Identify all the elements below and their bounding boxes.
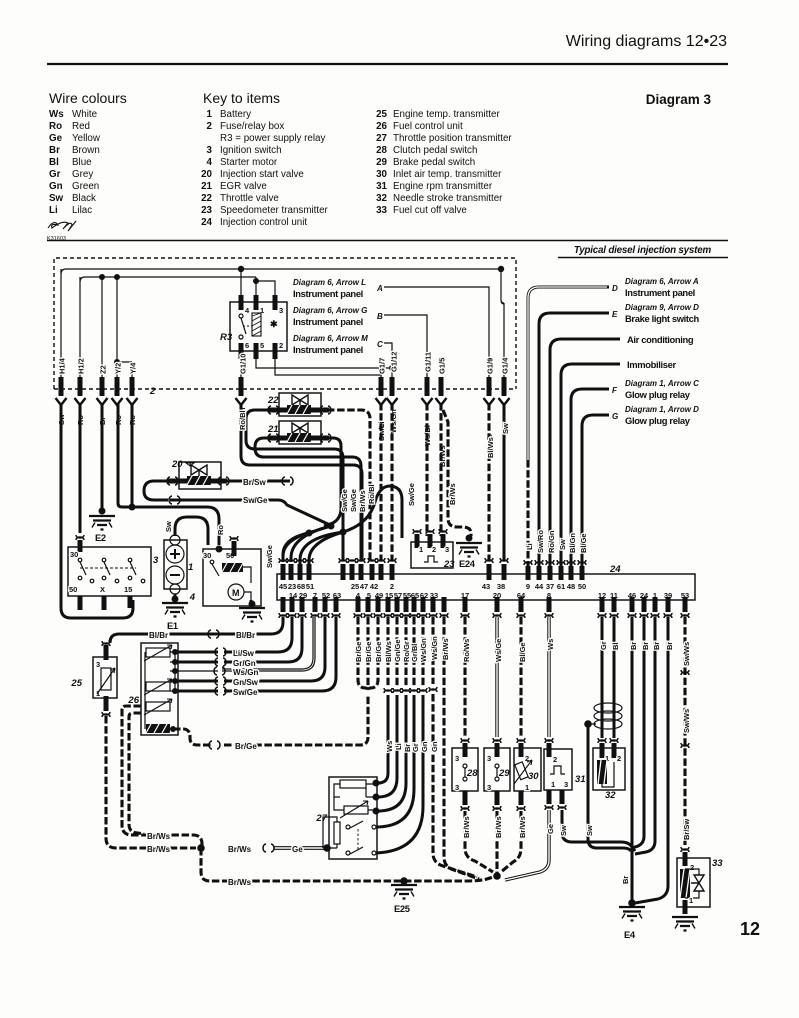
svg-text:Ro: Ro — [216, 525, 225, 535]
svg-text:29: 29 — [376, 157, 387, 168]
svg-text:Ws: Ws — [49, 109, 64, 120]
svg-text:Br: Br — [629, 642, 638, 650]
svg-text:E: E — [612, 310, 618, 319]
svg-text:2: 2 — [432, 545, 436, 554]
svg-text:28: 28 — [376, 145, 387, 156]
svg-text:23: 23 — [443, 559, 455, 570]
svg-text:Y/4: Y/4 — [129, 362, 138, 374]
svg-text:30: 30 — [203, 551, 211, 560]
svg-text:Brake pedal switch: Brake pedal switch — [393, 157, 475, 168]
svg-text:Fuel cut off valve: Fuel cut off valve — [393, 205, 467, 216]
svg-text:Br/Ws: Br/Ws — [228, 845, 252, 854]
svg-text:Diagram 3: Diagram 3 — [646, 92, 712, 107]
svg-text:Blue: Blue — [72, 157, 92, 168]
svg-text:Br/Ws: Br/Ws — [358, 490, 367, 512]
svg-text:25: 25 — [351, 582, 359, 591]
svg-text:Lilac: Lilac — [72, 205, 92, 216]
svg-text:9: 9 — [526, 582, 530, 591]
svg-text:Inlet air temp. transmitter: Inlet air temp. transmitter — [393, 169, 502, 180]
svg-text:Ws/Gn: Ws/Gn — [233, 668, 258, 677]
svg-text:Immobiliser: Immobiliser — [627, 359, 676, 370]
svg-text:Br/Ge: Br/Ge — [374, 642, 383, 662]
svg-text:G1/10: G1/10 — [239, 354, 248, 374]
svg-text:Ro: Ro — [49, 121, 62, 132]
svg-text:27: 27 — [376, 133, 387, 144]
svg-text:2: 2 — [553, 755, 557, 764]
svg-text:33: 33 — [712, 858, 723, 869]
svg-text:Diagram 6, Arrow L: Diagram 6, Arrow L — [293, 278, 366, 287]
svg-text:M: M — [232, 588, 240, 598]
svg-text:Br/Ws: Br/Ws — [441, 638, 450, 660]
svg-text:Ro/Bl: Ro/Bl — [367, 484, 376, 504]
svg-text:1: 1 — [525, 783, 529, 792]
svg-text:Y/2: Y/2 — [114, 363, 123, 374]
svg-text:Bl: Bl — [611, 643, 620, 651]
svg-text:Br/Ws: Br/Ws — [448, 483, 457, 505]
svg-text:G: G — [612, 412, 618, 421]
svg-text:Black: Black — [72, 193, 96, 204]
svg-text:Injection start valve: Injection start valve — [220, 169, 304, 180]
svg-text:Gn: Gn — [430, 741, 439, 752]
svg-text:6: 6 — [245, 341, 249, 350]
svg-text:4: 4 — [207, 157, 213, 168]
svg-text:Sw/Ws: Sw/Ws — [682, 642, 691, 666]
svg-text:50: 50 — [578, 582, 586, 591]
svg-text:31: 31 — [575, 774, 586, 785]
svg-text:Grey: Grey — [72, 169, 93, 180]
svg-text:4: 4 — [189, 592, 196, 603]
svg-text:Clutch pedal switch: Clutch pedal switch — [393, 145, 477, 156]
svg-text:White: White — [72, 109, 98, 120]
svg-text:3: 3 — [207, 145, 213, 156]
svg-text:Throttle position transmitter: Throttle position transmitter — [393, 133, 512, 144]
svg-text:E24: E24 — [459, 558, 476, 569]
svg-text:G1/12: G1/12 — [390, 352, 399, 372]
svg-text:38: 38 — [497, 582, 505, 591]
svg-text:Instrument panel: Instrument panel — [625, 287, 695, 298]
svg-text:42: 42 — [370, 582, 378, 591]
svg-text:Ro/Bl: Ro/Bl — [238, 410, 247, 430]
svg-text:Br/Ge: Br/Ge — [364, 642, 373, 662]
svg-text:20: 20 — [201, 169, 212, 180]
svg-text:Sw: Sw — [558, 539, 567, 550]
svg-text:Needle stroke transmitter: Needle stroke transmitter — [393, 193, 503, 204]
svg-text:3: 3 — [279, 306, 283, 315]
svg-text:23: 23 — [288, 582, 296, 591]
svg-text:Bl: Bl — [49, 157, 59, 168]
svg-text:Bl/Gn: Bl/Gn — [568, 533, 577, 553]
svg-text:Red: Red — [72, 121, 90, 132]
svg-text:Gr: Gr — [599, 641, 608, 650]
svg-text:Br/Ws: Br/Ws — [518, 816, 527, 838]
svg-text:Fuel control unit: Fuel control unit — [393, 121, 463, 132]
svg-text:✱: ✱ — [270, 319, 278, 329]
svg-text:Li: Li — [49, 205, 58, 216]
svg-text:Sw/Ro: Sw/Ro — [536, 530, 545, 553]
svg-text:Bl/Ws: Bl/Ws — [384, 641, 393, 662]
svg-text:27: 27 — [315, 813, 327, 824]
svg-text:1: 1 — [551, 780, 555, 789]
svg-text:Bl/Ge: Bl/Ge — [579, 533, 588, 553]
svg-text:Br/Ge: Br/Ge — [235, 742, 257, 751]
svg-text:Ws/Gn: Ws/Gn — [430, 636, 439, 660]
svg-text:Gn/Ge: Gn/Ge — [393, 639, 402, 662]
svg-text:24: 24 — [609, 564, 621, 575]
svg-text:Sw: Sw — [164, 521, 173, 532]
svg-text:3: 3 — [96, 660, 100, 669]
svg-text:24: 24 — [201, 217, 212, 228]
svg-text:30: 30 — [528, 771, 539, 782]
svg-text:21: 21 — [267, 424, 279, 435]
svg-text:44: 44 — [535, 582, 544, 591]
svg-text:61: 61 — [557, 582, 565, 591]
svg-text:Gr/Bl: Gr/Bl — [410, 644, 419, 662]
svg-text:Green: Green — [72, 181, 99, 192]
svg-text:Air conditioning: Air conditioning — [627, 334, 694, 345]
svg-text:Sw: Sw — [49, 193, 64, 204]
svg-text:47: 47 — [360, 582, 368, 591]
svg-text:29: 29 — [498, 768, 510, 779]
svg-text:15: 15 — [124, 585, 132, 594]
svg-text:5: 5 — [260, 341, 264, 350]
svg-text:Fuse/relay box: Fuse/relay box — [220, 121, 284, 132]
svg-text:31: 31 — [376, 181, 387, 192]
svg-text:3: 3 — [564, 780, 568, 789]
svg-text:G1/4: G1/4 — [501, 357, 510, 374]
svg-text:Speedometer transmitter: Speedometer transmitter — [220, 205, 329, 216]
svg-text:12: 12 — [740, 919, 760, 939]
svg-text:25: 25 — [376, 109, 387, 120]
svg-text:Li: Li — [525, 543, 534, 550]
svg-text:3: 3 — [153, 555, 159, 566]
svg-text:Starter motor: Starter motor — [220, 157, 278, 168]
svg-text:Br/Ws: Br/Ws — [462, 816, 471, 838]
svg-text:51: 51 — [306, 582, 314, 591]
svg-text:Instrument panel: Instrument panel — [293, 316, 363, 327]
svg-text:Sw: Sw — [585, 825, 594, 836]
svg-text:Bl/Ws: Bl/Ws — [486, 437, 495, 458]
svg-text:Sw/Ge: Sw/Ge — [265, 545, 274, 568]
svg-text:Instrument panel: Instrument panel — [293, 344, 363, 355]
svg-text:Sw/Ws: Sw/Ws — [682, 709, 691, 733]
svg-text:Gr/Gn: Gr/Gn — [233, 659, 256, 668]
svg-text:Instrument panel: Instrument panel — [293, 288, 363, 299]
svg-text:Br/Ws: Br/Ws — [147, 832, 171, 841]
svg-text:1: 1 — [188, 562, 193, 573]
svg-text:E1: E1 — [167, 620, 178, 631]
svg-text:Brake light switch: Brake light switch — [625, 313, 700, 324]
svg-text:Ignition switch: Ignition switch — [220, 145, 282, 156]
svg-text:Sw: Sw — [559, 825, 568, 836]
svg-text:22: 22 — [267, 395, 279, 406]
svg-text:Ge: Ge — [546, 824, 555, 834]
svg-text:B: B — [377, 312, 383, 321]
svg-text:Engine temp. transmitter: Engine temp. transmitter — [393, 109, 500, 120]
svg-text:3: 3 — [455, 783, 459, 792]
svg-text:2: 2 — [690, 863, 694, 872]
svg-text:3: 3 — [445, 545, 449, 554]
svg-text:Typical diesel injection syste: Typical diesel injection system — [574, 245, 712, 256]
svg-text:A: A — [376, 284, 383, 293]
svg-text:G1/7: G1/7 — [378, 358, 387, 374]
svg-text:2: 2 — [207, 121, 213, 132]
svg-text:Ro/Gn: Ro/Gn — [547, 530, 556, 553]
svg-text:Glow plug relay: Glow plug relay — [625, 415, 691, 426]
svg-text:R3: R3 — [220, 332, 233, 343]
svg-text:Diagram 1, Arrow C: Diagram 1, Arrow C — [625, 379, 699, 388]
svg-text:Sw/Ge: Sw/Ge — [233, 688, 258, 697]
svg-text:Br/Ge: Br/Ge — [354, 642, 363, 662]
svg-text:Ws/Gn: Ws/Gn — [419, 638, 428, 662]
svg-text:2: 2 — [149, 386, 156, 397]
svg-text:Glow plug relay: Glow plug relay — [625, 389, 691, 400]
svg-text:1: 1 — [419, 545, 423, 554]
svg-text:Yellow: Yellow — [72, 133, 101, 144]
svg-text:E25: E25 — [394, 903, 410, 914]
svg-text:Br/Sw: Br/Sw — [682, 819, 691, 840]
svg-text:3: 3 — [487, 754, 491, 763]
svg-text:2: 2 — [279, 341, 283, 350]
svg-text:Ws/Ge: Ws/Ge — [494, 639, 503, 662]
svg-text:26: 26 — [127, 695, 139, 706]
svg-text:Ws: Ws — [385, 741, 394, 752]
svg-text:Battery: Battery — [220, 109, 251, 120]
svg-text:C: C — [377, 340, 383, 349]
svg-text:Sw: Sw — [501, 423, 510, 434]
svg-text:Gn/Sw: Gn/Sw — [233, 678, 259, 687]
svg-text:Br: Br — [665, 642, 674, 650]
svg-text:Ge: Ge — [49, 133, 63, 144]
svg-text:25: 25 — [70, 678, 82, 689]
svg-text:Br: Br — [621, 876, 630, 884]
svg-text:Diagram 6, Arrow A: Diagram 6, Arrow A — [625, 277, 699, 286]
svg-text:H1/4: H1/4 — [58, 357, 67, 374]
svg-text:D: D — [612, 284, 618, 293]
svg-text:1: 1 — [689, 896, 693, 905]
svg-text:21: 21 — [201, 181, 212, 192]
svg-text:Sw/Ge: Sw/Ge — [340, 489, 349, 512]
svg-text:Br/Ws: Br/Ws — [494, 816, 503, 838]
svg-text:G1/11: G1/11 — [424, 352, 433, 372]
svg-text:2: 2 — [617, 754, 621, 763]
svg-text:Engine rpm transmitter: Engine rpm transmitter — [393, 181, 493, 192]
svg-text:G1/9: G1/9 — [486, 358, 495, 374]
svg-text:Gr: Gr — [49, 169, 61, 180]
svg-text:43: 43 — [482, 582, 490, 591]
svg-text:E2: E2 — [95, 532, 106, 543]
svg-text:Li/Sw: Li/Sw — [233, 649, 255, 658]
svg-text:3: 3 — [455, 754, 459, 763]
svg-text:Bl/Br: Bl/Br — [236, 631, 255, 640]
svg-text:30: 30 — [70, 550, 78, 559]
svg-text:Br: Br — [641, 642, 650, 650]
svg-text:Gr: Gr — [411, 743, 420, 752]
svg-text:Br/Sw: Br/Sw — [243, 478, 266, 487]
svg-text:23: 23 — [201, 205, 212, 216]
svg-text:Li: Li — [394, 743, 403, 750]
svg-text:Z2: Z2 — [99, 365, 108, 374]
svg-text:R3 = power supply relay: R3 = power supply relay — [220, 133, 325, 144]
svg-text:Sw/Ge: Sw/Ge — [243, 496, 268, 505]
svg-text:Gn: Gn — [420, 741, 429, 752]
svg-text:Ws: Ws — [546, 639, 555, 650]
svg-text:37: 37 — [546, 582, 554, 591]
svg-text:3: 3 — [487, 783, 491, 792]
svg-text:Br/Ws: Br/Ws — [147, 845, 171, 854]
svg-text:22: 22 — [201, 193, 212, 204]
svg-text:Throttle valve: Throttle valve — [220, 193, 279, 204]
svg-text:Diagram 1, Arrow D: Diagram 1, Arrow D — [625, 405, 699, 414]
svg-text:Diagram 9, Arrow D: Diagram 9, Arrow D — [625, 303, 699, 312]
svg-text:E4: E4 — [624, 929, 636, 940]
svg-text:32: 32 — [605, 790, 616, 801]
svg-text:Ge: Ge — [292, 845, 303, 854]
svg-text:Sw/Ge: Sw/Ge — [349, 489, 358, 512]
svg-text:Sw/Ge: Sw/Ge — [407, 483, 416, 506]
svg-text:F: F — [612, 386, 618, 395]
svg-text:Diagram 6, Arrow G: Diagram 6, Arrow G — [293, 306, 367, 315]
svg-text:68: 68 — [297, 582, 305, 591]
svg-text:Br: Br — [652, 642, 661, 650]
svg-text:1: 1 — [207, 109, 213, 120]
svg-text:Ro/Ws: Ro/Ws — [462, 639, 471, 662]
svg-text:H1/2: H1/2 — [77, 358, 86, 374]
svg-text:Bl/Ge: Bl/Ge — [518, 642, 527, 662]
svg-text:EGR valve: EGR valve — [220, 181, 267, 192]
svg-text:26: 26 — [376, 121, 387, 132]
svg-text:Br/Ws: Br/Ws — [228, 878, 252, 887]
svg-text:20: 20 — [171, 459, 183, 470]
svg-text:Gn: Gn — [49, 181, 63, 192]
svg-text:Injection control unit: Injection control unit — [220, 217, 307, 228]
svg-text:Diagram 6, Arrow M: Diagram 6, Arrow M — [293, 334, 368, 343]
svg-text:2: 2 — [390, 582, 394, 591]
svg-text:Br: Br — [49, 145, 60, 156]
svg-text:4: 4 — [245, 306, 250, 315]
svg-text:50: 50 — [69, 585, 77, 594]
svg-text:Wiring diagrams 12•23: Wiring diagrams 12•23 — [566, 33, 727, 50]
svg-text:Bl/Br: Bl/Br — [149, 631, 168, 640]
svg-text:48: 48 — [567, 582, 575, 591]
svg-text:X: X — [100, 585, 105, 594]
svg-text:G1/5: G1/5 — [438, 358, 447, 374]
svg-text:32: 32 — [376, 193, 387, 204]
svg-text:33: 33 — [376, 205, 387, 216]
svg-text:30: 30 — [376, 169, 387, 180]
svg-text:Key to items: Key to items — [203, 90, 280, 106]
svg-text:Brown: Brown — [72, 145, 100, 156]
svg-text:45: 45 — [279, 582, 287, 591]
svg-text:28: 28 — [466, 768, 478, 779]
svg-text:Wire colours: Wire colours — [49, 90, 127, 106]
